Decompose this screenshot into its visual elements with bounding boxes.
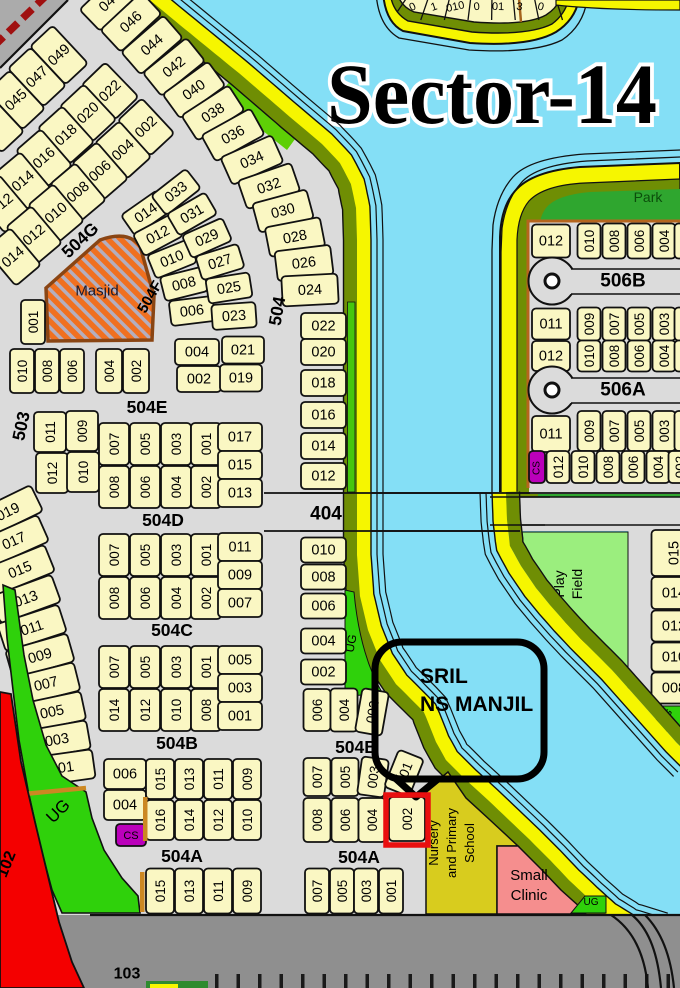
svg-text:103: 103 bbox=[114, 966, 141, 983]
svg-text:504A: 504A bbox=[338, 847, 380, 867]
svg-text:022: 022 bbox=[311, 319, 335, 335]
svg-text:008: 008 bbox=[199, 699, 214, 722]
svg-text:014: 014 bbox=[311, 439, 335, 455]
svg-text:Small: Small bbox=[510, 867, 548, 884]
svg-text:011: 011 bbox=[539, 317, 562, 333]
svg-text:004: 004 bbox=[102, 359, 117, 382]
svg-text:504D: 504D bbox=[142, 510, 184, 530]
svg-text:009: 009 bbox=[240, 880, 255, 903]
svg-text:001: 001 bbox=[199, 656, 214, 679]
svg-text:007: 007 bbox=[310, 766, 325, 789]
svg-text:010: 010 bbox=[582, 345, 597, 368]
svg-text:002: 002 bbox=[199, 476, 214, 499]
svg-text:003: 003 bbox=[169, 656, 184, 679]
svg-text:006: 006 bbox=[65, 360, 80, 383]
svg-text:005: 005 bbox=[632, 420, 647, 443]
svg-text:013: 013 bbox=[228, 486, 252, 502]
svg-text:010: 010 bbox=[311, 543, 335, 559]
svg-text:School: School bbox=[462, 823, 477, 863]
svg-text:016: 016 bbox=[311, 408, 335, 424]
svg-text:010: 010 bbox=[576, 456, 591, 479]
svg-text:NS MANJIL: NS MANJIL bbox=[420, 693, 533, 716]
svg-text:011: 011 bbox=[43, 421, 58, 443]
svg-text:008: 008 bbox=[662, 681, 680, 697]
svg-text:and Primary: and Primary bbox=[444, 807, 459, 878]
svg-text:006: 006 bbox=[311, 599, 335, 615]
svg-text:504A: 504A bbox=[161, 846, 203, 866]
svg-text:011: 011 bbox=[211, 768, 226, 790]
svg-text:001: 001 bbox=[26, 311, 41, 334]
svg-text:005: 005 bbox=[228, 653, 252, 669]
svg-text:CS: CS bbox=[532, 461, 543, 475]
svg-text:015: 015 bbox=[667, 541, 680, 565]
svg-text:009: 009 bbox=[240, 768, 255, 791]
svg-text:002: 002 bbox=[187, 372, 211, 388]
svg-text:009: 009 bbox=[228, 568, 252, 584]
svg-text:506A: 506A bbox=[600, 380, 646, 401]
svg-text:010: 010 bbox=[662, 650, 680, 666]
svg-text:008: 008 bbox=[310, 809, 325, 832]
svg-text:008: 008 bbox=[607, 345, 622, 368]
svg-text:006: 006 bbox=[632, 345, 647, 368]
svg-text:007: 007 bbox=[310, 880, 325, 903]
svg-text:004: 004 bbox=[657, 229, 672, 252]
svg-text:014: 014 bbox=[107, 698, 122, 721]
svg-text:004: 004 bbox=[113, 798, 137, 814]
svg-text:01: 01 bbox=[492, 1, 504, 13]
svg-text:009: 009 bbox=[582, 420, 597, 443]
svg-text:012: 012 bbox=[662, 619, 680, 635]
svg-text:019: 019 bbox=[229, 371, 253, 387]
svg-text:012: 012 bbox=[45, 462, 60, 485]
svg-text:024: 024 bbox=[298, 282, 323, 299]
svg-text:006: 006 bbox=[626, 456, 641, 479]
svg-text:023: 023 bbox=[221, 308, 246, 326]
svg-text:013: 013 bbox=[182, 768, 197, 791]
svg-text:Sector-14: Sector-14 bbox=[327, 46, 657, 142]
svg-text:UG: UG bbox=[584, 897, 599, 908]
svg-text:011: 011 bbox=[228, 540, 251, 556]
svg-text:008: 008 bbox=[107, 476, 122, 499]
svg-text:504B: 504B bbox=[156, 733, 198, 753]
svg-text:007: 007 bbox=[228, 596, 252, 612]
svg-text:008: 008 bbox=[107, 587, 122, 610]
svg-text:004: 004 bbox=[365, 808, 380, 831]
svg-text:004: 004 bbox=[311, 634, 335, 650]
svg-text:003: 003 bbox=[657, 313, 672, 336]
svg-text:006: 006 bbox=[632, 230, 647, 253]
svg-text:008: 008 bbox=[601, 456, 616, 479]
svg-text:014: 014 bbox=[662, 586, 680, 602]
svg-text:005: 005 bbox=[138, 544, 153, 567]
svg-text:006: 006 bbox=[179, 302, 205, 321]
svg-text:012: 012 bbox=[211, 809, 226, 832]
svg-text:003: 003 bbox=[359, 880, 374, 903]
svg-text:003: 003 bbox=[169, 433, 184, 456]
svg-text:008: 008 bbox=[607, 230, 622, 253]
svg-text:504C: 504C bbox=[151, 620, 193, 640]
svg-text:002: 002 bbox=[400, 808, 415, 831]
svg-text:002: 002 bbox=[129, 360, 144, 383]
svg-text:SRIL: SRIL bbox=[420, 665, 468, 688]
svg-text:009: 009 bbox=[75, 420, 90, 443]
svg-text:001: 001 bbox=[199, 433, 214, 456]
svg-text:Clinic: Clinic bbox=[511, 887, 548, 904]
svg-text:015: 015 bbox=[228, 458, 252, 474]
svg-text:504B: 504B bbox=[335, 737, 377, 757]
svg-text:004: 004 bbox=[337, 698, 352, 721]
svg-text:0: 0 bbox=[473, 1, 480, 14]
svg-text:506B: 506B bbox=[600, 271, 645, 292]
svg-text:006: 006 bbox=[310, 699, 325, 722]
svg-text:001: 001 bbox=[384, 880, 399, 903]
svg-text:017: 017 bbox=[228, 430, 252, 446]
svg-text:006: 006 bbox=[138, 587, 153, 610]
svg-text:CS: CS bbox=[123, 830, 138, 842]
svg-text:007: 007 bbox=[607, 313, 622, 336]
svg-text:002: 002 bbox=[673, 456, 680, 479]
svg-text:015: 015 bbox=[153, 880, 168, 903]
svg-text:004: 004 bbox=[185, 345, 209, 361]
svg-text:010: 010 bbox=[76, 461, 91, 484]
svg-text:006: 006 bbox=[138, 476, 153, 499]
svg-text:009: 009 bbox=[582, 313, 597, 336]
svg-text:004: 004 bbox=[169, 586, 184, 609]
svg-text:013: 013 bbox=[182, 880, 197, 903]
svg-text:012: 012 bbox=[551, 456, 566, 479]
svg-text:011: 011 bbox=[539, 427, 562, 443]
svg-text:005: 005 bbox=[138, 433, 153, 456]
svg-text:012: 012 bbox=[311, 469, 335, 485]
svg-text:504E: 504E bbox=[127, 397, 168, 417]
svg-text:004: 004 bbox=[651, 455, 666, 478]
svg-text:007: 007 bbox=[107, 544, 122, 567]
svg-text:003: 003 bbox=[657, 420, 672, 443]
svg-text:005: 005 bbox=[338, 766, 353, 789]
svg-text:002: 002 bbox=[199, 587, 214, 610]
svg-text:003: 003 bbox=[228, 681, 252, 697]
svg-text:010: 010 bbox=[15, 360, 30, 383]
svg-text:006: 006 bbox=[338, 809, 353, 832]
svg-text:Masjid: Masjid bbox=[75, 283, 118, 300]
svg-text:010: 010 bbox=[240, 809, 255, 832]
svg-text:003: 003 bbox=[169, 544, 184, 567]
svg-text:011: 011 bbox=[211, 880, 226, 902]
svg-text:001: 001 bbox=[199, 544, 214, 567]
svg-text:010: 010 bbox=[582, 230, 597, 253]
svg-text:Field: Field bbox=[569, 569, 585, 599]
svg-text:012: 012 bbox=[539, 234, 563, 250]
svg-text:007: 007 bbox=[107, 433, 122, 456]
svg-text:012: 012 bbox=[138, 699, 153, 722]
svg-text:010: 010 bbox=[169, 699, 184, 722]
svg-text:015: 015 bbox=[153, 768, 168, 791]
svg-text:008: 008 bbox=[311, 570, 335, 586]
svg-text:007: 007 bbox=[607, 420, 622, 443]
svg-text:002: 002 bbox=[311, 665, 335, 681]
svg-text:016: 016 bbox=[153, 809, 168, 832]
svg-text:008: 008 bbox=[40, 360, 55, 383]
svg-text:404: 404 bbox=[310, 504, 342, 525]
svg-text:007: 007 bbox=[107, 656, 122, 679]
svg-text:012: 012 bbox=[539, 349, 563, 365]
svg-text:020: 020 bbox=[311, 345, 335, 361]
svg-text:021: 021 bbox=[231, 343, 255, 359]
svg-text:026: 026 bbox=[291, 254, 317, 273]
svg-text:004: 004 bbox=[657, 344, 672, 367]
svg-text:Park: Park bbox=[634, 189, 664, 205]
svg-text:018: 018 bbox=[311, 376, 335, 392]
svg-text:005: 005 bbox=[138, 656, 153, 679]
svg-text:004: 004 bbox=[169, 475, 184, 498]
svg-text:006: 006 bbox=[113, 767, 137, 783]
svg-text:005: 005 bbox=[632, 313, 647, 336]
svg-text:014: 014 bbox=[182, 808, 197, 831]
svg-text:001: 001 bbox=[228, 709, 252, 725]
svg-text:005: 005 bbox=[335, 880, 350, 903]
